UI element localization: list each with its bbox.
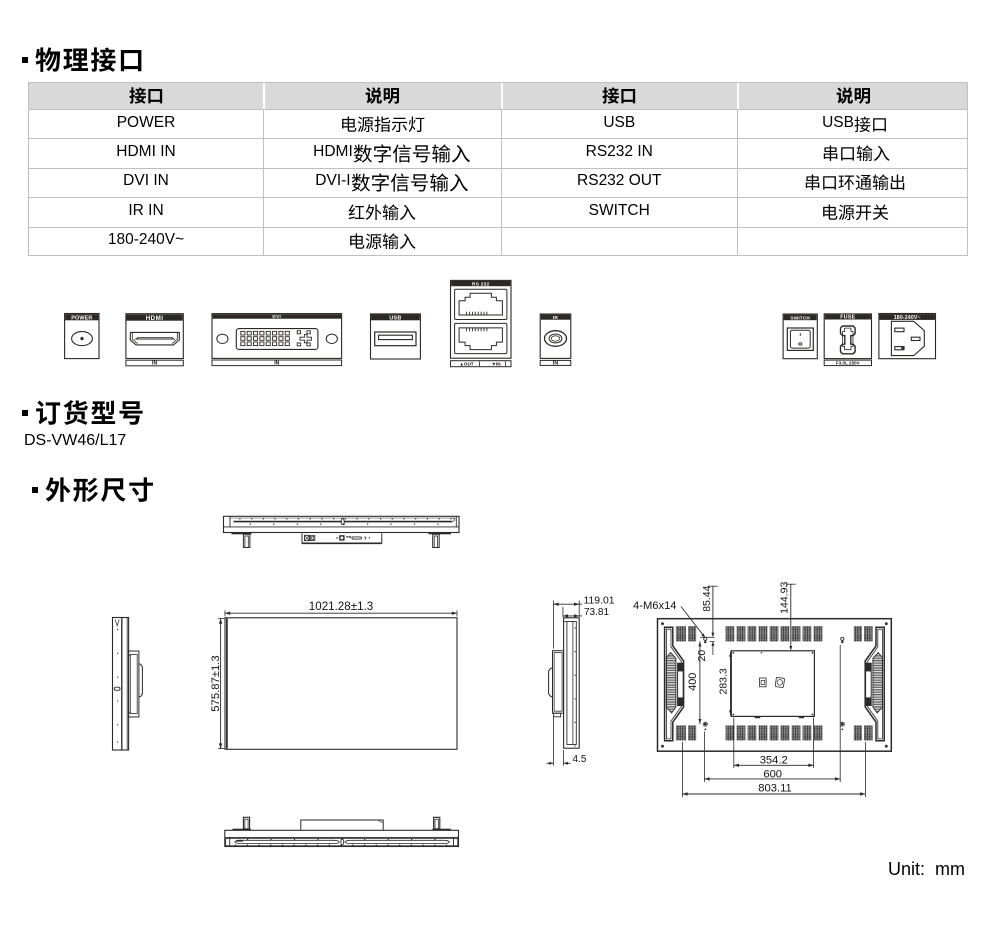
- svg-text:4-M6x14: 4-M6x14: [633, 600, 677, 612]
- svg-text:354.2: 354.2: [760, 755, 788, 767]
- svg-text:85.44: 85.44: [701, 585, 713, 611]
- svg-text:144.93: 144.93: [779, 582, 791, 614]
- svg-text:575.87±1.3: 575.87±1.3: [210, 655, 222, 711]
- svg-text:73.81: 73.81: [584, 607, 609, 618]
- svg-text:400: 400: [687, 673, 699, 691]
- svg-text:119.01: 119.01: [584, 595, 615, 606]
- svg-text:4.5: 4.5: [573, 754, 587, 765]
- svg-text:803.11: 803.11: [758, 783, 791, 795]
- svg-text:20: 20: [696, 650, 708, 662]
- svg-text:283.3: 283.3: [718, 668, 730, 694]
- svg-text:600: 600: [763, 769, 782, 781]
- svg-text:1021.28±1.3: 1021.28±1.3: [309, 600, 373, 613]
